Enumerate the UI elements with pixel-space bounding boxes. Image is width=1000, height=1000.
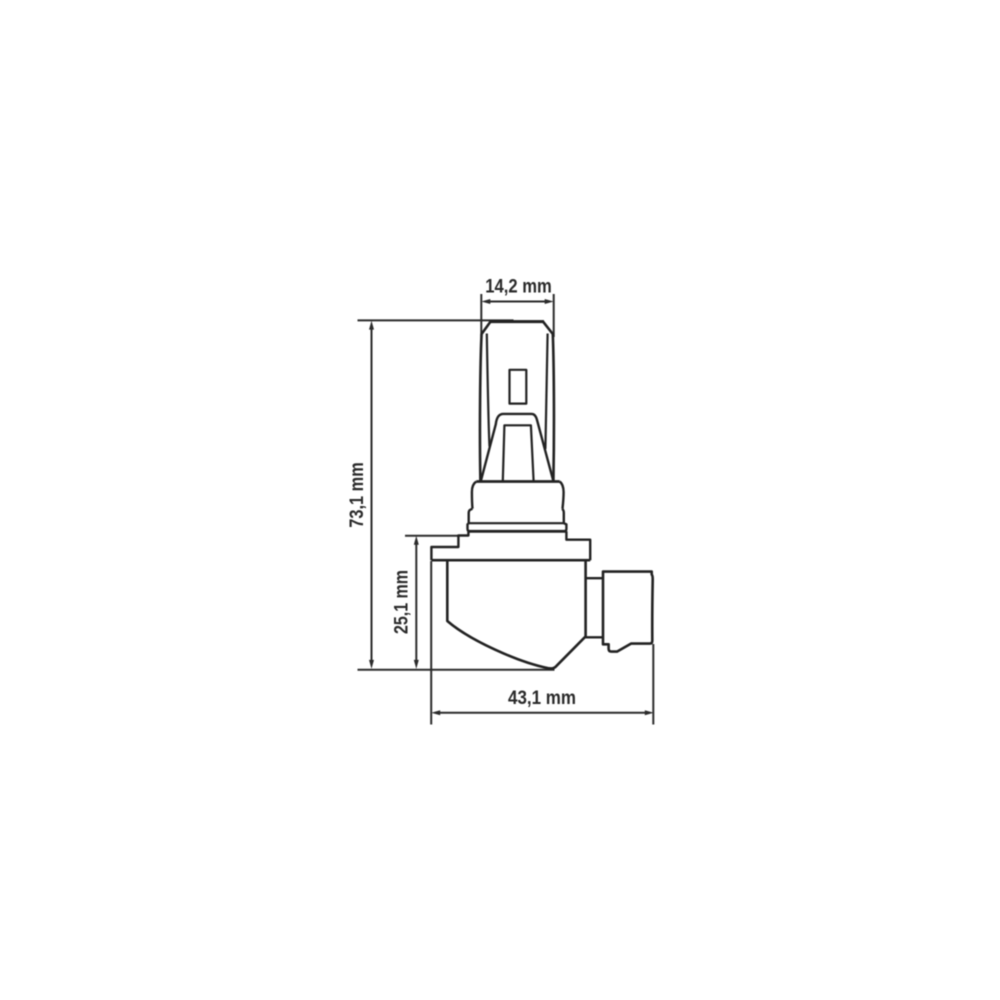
svg-text:14,2 mm: 14,2 mm — [485, 276, 552, 298]
svg-text:73,1 mm: 73,1 mm — [346, 462, 368, 528]
svg-text:25,1 mm: 25,1 mm — [391, 570, 413, 634]
svg-text:43,1 mm: 43,1 mm — [508, 687, 576, 709]
